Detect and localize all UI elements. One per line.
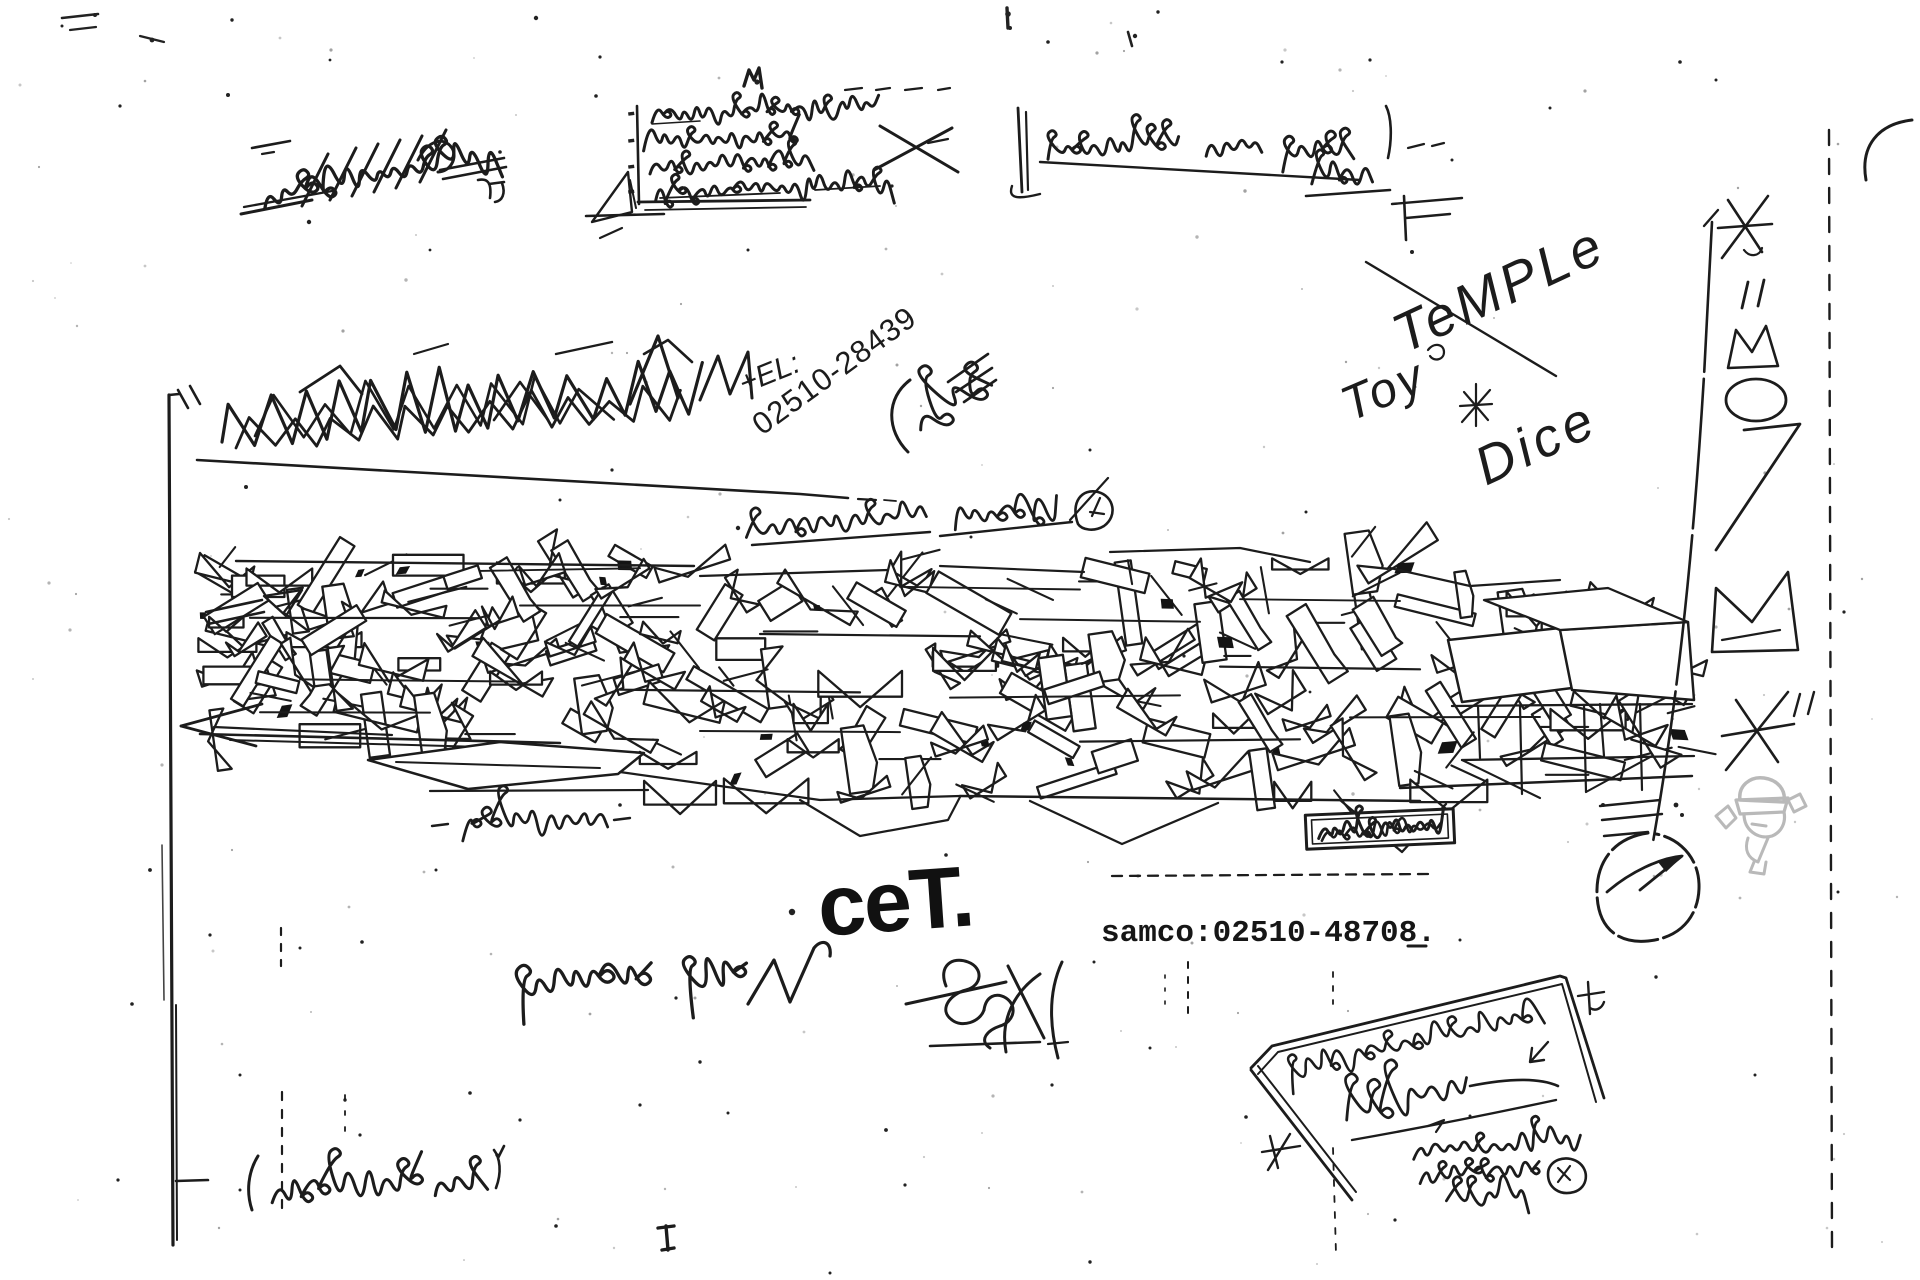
svg-text:samco:02510-48708.: samco:02510-48708. [1101, 916, 1436, 951]
svg-text:Toy: Toy [1333, 349, 1433, 432]
svg-text:ceT.: ceT. [815, 848, 976, 955]
